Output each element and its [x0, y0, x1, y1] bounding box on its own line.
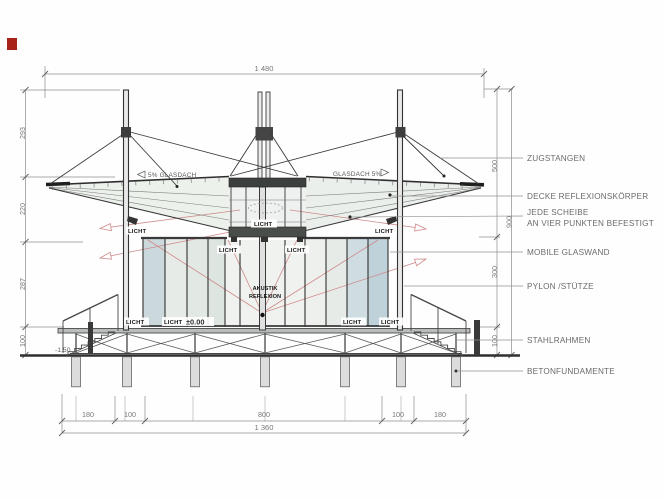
licht-wall-top-right: LICHT	[287, 248, 306, 254]
spotlight-right	[386, 216, 397, 225]
dim-total-width: 1 480	[254, 64, 273, 73]
dim-bottom-800: 800	[258, 410, 270, 419]
concrete-piles	[72, 357, 461, 387]
licht-clerestory: LICHT	[254, 222, 273, 228]
scheibe-fixing-dot	[348, 215, 351, 218]
dim-bottom-total: 1 360	[254, 423, 273, 432]
dim-bottom-100r: 100	[392, 410, 404, 419]
label-glasdach-left: 5% GLASDACH	[148, 172, 197, 179]
label-jede-scheibe-2: AN VIER PUNKTEN BEFESTIGT	[527, 219, 654, 228]
section-drawing: 1 480 293 220 287 100 500 300 100 900 18…	[0, 0, 666, 500]
licht-wall-bottom-left: LICHT	[126, 320, 145, 326]
truss-diagonals	[76, 334, 456, 353]
floor-level-value: ±0.00	[186, 318, 204, 327]
dim-right-100: 100	[490, 335, 499, 347]
mast-node	[256, 127, 274, 141]
slope-arrow-left-icon	[138, 171, 146, 178]
roof-tip-cap-right	[460, 184, 484, 185]
roof-tip-cap-left	[46, 184, 70, 185]
dim-left-100: 100	[18, 335, 27, 347]
dim-bottom-180r: 180	[434, 410, 446, 419]
bollard-right	[474, 320, 480, 355]
licht-pylon-right: LICHT	[375, 229, 394, 235]
licht-wall-bottom-right: LICHT	[381, 320, 400, 326]
dim-right-300: 300	[490, 266, 499, 278]
focal-node	[260, 313, 264, 317]
label-glasdach-right: GLASDACH 5%	[333, 171, 381, 178]
dim-left-287: 287	[18, 278, 27, 290]
pylon-right	[398, 90, 403, 330]
licht-floor: LICHT	[164, 320, 183, 326]
label-mobile-glaswand: MOBILE GLASWAND	[527, 248, 610, 257]
floor-steel-frame	[58, 329, 470, 355]
label-akustik: AKUSTIK	[253, 286, 278, 292]
rod-anchor-dot-left	[176, 185, 179, 188]
label-zugstangen: ZUGSTANGEN	[527, 154, 585, 163]
licht-pylon-left: LICHT	[128, 229, 147, 235]
label-stahlrahmen: STAHLRAHMEN	[527, 336, 590, 345]
licht-wall-bottom-mid: LICHT	[343, 320, 362, 326]
drawing-canvas: 1 480 293 220 287 100 500 300 100 900 18…	[0, 0, 666, 500]
label-jede-scheibe-1: JEDE SCHEIBE	[527, 208, 589, 217]
dim-right-900: 900	[505, 216, 514, 228]
pylon-left	[124, 90, 129, 330]
dim-left-220: 220	[18, 203, 27, 215]
center-column	[260, 187, 266, 330]
dim-bottom-100l: 100	[124, 410, 136, 419]
label-reflexion: REFLEXION	[249, 294, 281, 300]
decke-fixing-dot	[388, 193, 391, 196]
foundation-leader-dot	[455, 370, 458, 373]
label-pylon: PYLON /STÜTZE	[527, 281, 594, 291]
dim-bottom-180l: 180	[82, 410, 94, 419]
dim-right-500: 500	[490, 160, 499, 172]
red-marker	[7, 38, 17, 50]
foundations	[20, 356, 520, 387]
rod-anchor-dot-right	[443, 175, 446, 178]
slope-arrow-right-icon	[381, 169, 389, 176]
bollard-left	[88, 322, 93, 353]
licht-wall-top-left: LICHT	[219, 248, 238, 254]
label-decke: DECKE REFLEXIONSKÖRPER	[527, 191, 648, 201]
clerestory-top-beam	[229, 178, 306, 187]
label-betonfundamente: BETONFUNDAMENTE	[527, 367, 615, 376]
reflector-box	[229, 227, 306, 237]
truss-posts	[76, 333, 456, 354]
dim-left-293: 293	[18, 127, 27, 139]
